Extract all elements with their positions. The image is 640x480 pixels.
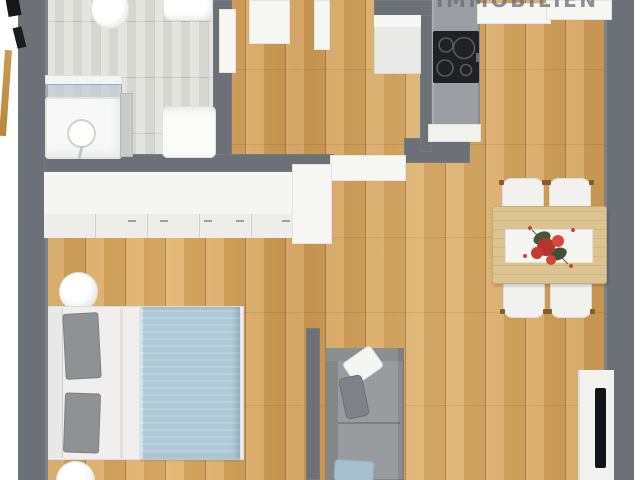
watermark-text: IMMOBILIEN [436, 0, 599, 12]
chair-leg [589, 180, 594, 185]
kitchen-counter-end-cap [428, 124, 481, 142]
flower-bud [569, 264, 573, 268]
sofa-edge-shadow [398, 348, 404, 480]
wardrobe-front [44, 214, 308, 238]
flower-red [552, 235, 564, 247]
wall-left-outer [18, 0, 48, 480]
tv [595, 388, 606, 468]
flower-bud [571, 228, 575, 232]
cooktop [433, 31, 479, 83]
bed-pillow-top [62, 312, 101, 380]
chair-leg [546, 180, 551, 185]
washing-machine [162, 106, 216, 158]
wardrobe-handle [282, 220, 290, 222]
flower-bud [523, 254, 527, 258]
bed-sheet-fold [120, 308, 123, 458]
flower-red [531, 247, 543, 259]
sofa-pillow-blue [333, 459, 374, 480]
floor-plan: IMMOBILIEN [0, 0, 640, 480]
sofa-pillow-gray [338, 374, 370, 420]
wardrobe-handle [160, 220, 168, 222]
dining-chair-bottom-left [503, 280, 545, 318]
hall-door-sliver [314, 0, 330, 50]
chair-leg [590, 309, 595, 314]
bathroom-door-leaf [219, 9, 236, 73]
bathroom-sink [163, 0, 213, 21]
hall-tall-cabinet [374, 15, 421, 74]
wall-kitchen-top-chunk [374, 0, 432, 16]
bedroom-door-leaf [292, 164, 332, 244]
dining-chair-bottom-right [550, 280, 592, 318]
bed-blanket [140, 307, 240, 459]
bed-headboard [48, 308, 63, 458]
entrance-door-shadow-top [6, 0, 22, 17]
flower-centerpiece [518, 220, 580, 274]
entry-door-panel [249, 0, 290, 44]
bathroom-radiator [120, 93, 133, 157]
wardrobe-handle [204, 220, 212, 222]
wardrobe-handle [128, 220, 136, 222]
wardrobe-handle [236, 220, 244, 222]
chair-leg [499, 180, 504, 185]
shower-head [67, 119, 96, 148]
hall-cabinet-top [374, 15, 421, 27]
chair-leg [547, 309, 552, 314]
cooktop-panel [433, 31, 479, 83]
flower-bud [528, 226, 532, 230]
bed-pillow-bottom [63, 392, 101, 453]
sofa [326, 348, 404, 480]
flower-red [546, 255, 556, 265]
doorway-threshold-living [330, 155, 406, 181]
chair-leg [500, 309, 505, 314]
cooktop-knob [476, 53, 479, 62]
bedroom-wardrobe [44, 172, 308, 238]
outside-right [634, 0, 640, 480]
bed [48, 306, 244, 460]
sofa-seat-seam [338, 422, 400, 424]
wall-bedroom-living [306, 328, 320, 480]
